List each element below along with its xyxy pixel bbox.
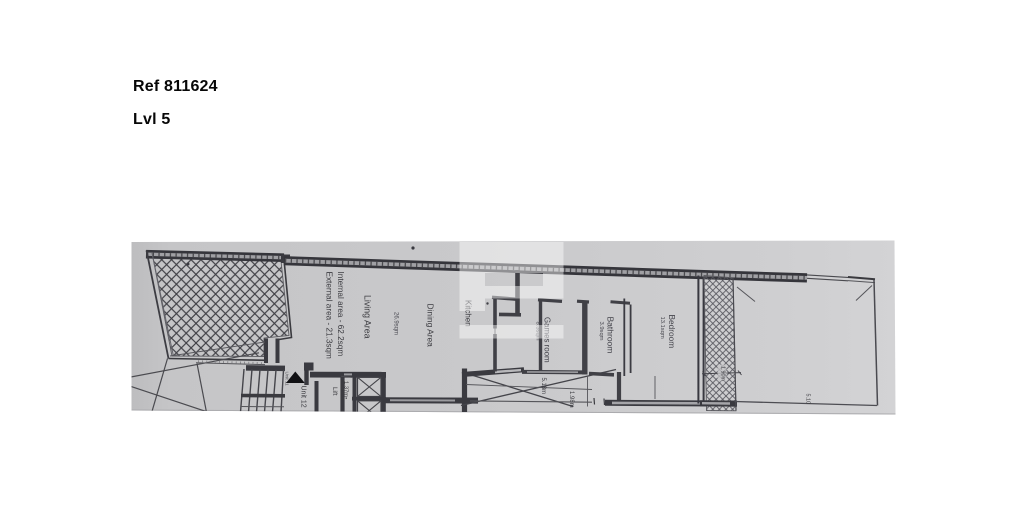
- svg-text:1.37m•: 1.37m•: [343, 381, 349, 399]
- svg-text:Unit 12: Unit 12: [300, 386, 307, 408]
- svg-text:Unit 11: Unit 11: [285, 372, 290, 387]
- svg-text:Games room: Games room: [543, 317, 552, 363]
- svg-text:5.18m: 5.18m: [540, 378, 546, 395]
- svg-text:Living Area: Living Area: [363, 295, 373, 339]
- svg-text:Internal area - 62.2sqm: Internal area - 62.2sqm: [336, 272, 345, 357]
- svg-text:26.9sqm: 26.9sqm: [393, 312, 399, 335]
- svg-text:1.98m: 1.98m: [568, 391, 574, 408]
- svg-text:1.90m: 1.90m: [720, 366, 726, 381]
- svg-text:3.9sqm: 3.9sqm: [598, 322, 604, 341]
- svg-text:Bedroom: Bedroom: [667, 315, 677, 349]
- svg-text:Dining Area: Dining Area: [426, 304, 436, 348]
- svg-text:13.1sqm: 13.1sqm: [659, 317, 665, 339]
- svg-text:Bathroom: Bathroom: [606, 317, 616, 354]
- svg-text:Lift: Lift: [331, 387, 338, 396]
- svg-text:5.10: 5.10: [805, 394, 811, 405]
- svg-text:External area - 21.3sqm: External area - 21.3sqm: [325, 272, 334, 360]
